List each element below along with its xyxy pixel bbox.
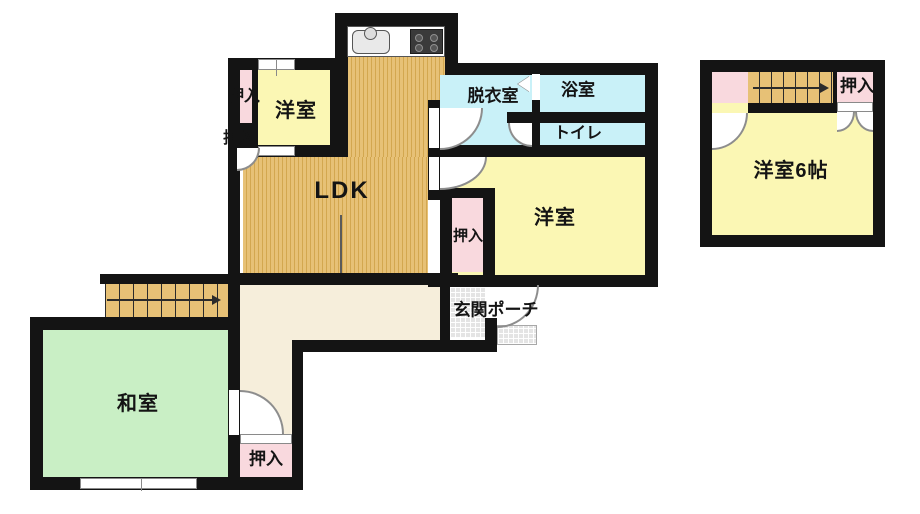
floor-plan: 押入 押入 洋室 LDK 脱衣室 浴室 トイレ 洋室 押入 和室 押入 玄関ポー…: [0, 0, 920, 514]
folding-door-icon: [518, 76, 530, 92]
wall: [833, 72, 837, 103]
stairs-2f-arrow: [753, 87, 823, 89]
label-closet-2f: 押入: [840, 78, 874, 95]
wall: [507, 112, 658, 123]
wall: [100, 274, 230, 284]
label-western-room-top: 洋室: [275, 101, 317, 121]
wall: [483, 198, 495, 275]
label-oshiire-top-1: 押入: [228, 89, 260, 105]
label-toilet: トイレ: [554, 126, 602, 142]
label-western-room-right: 洋室: [534, 208, 576, 228]
label-western-room-6jo: 洋室6帖: [753, 161, 828, 181]
wall: [228, 158, 240, 330]
porch-tile: [497, 325, 537, 345]
kitchen-faucet-icon: [364, 27, 377, 40]
wall: [440, 278, 450, 340]
wall: [645, 63, 658, 287]
closet-area-2f-left: [712, 72, 748, 103]
label-ldk: LDK: [314, 179, 369, 203]
wall: [428, 275, 658, 287]
wall: [330, 58, 348, 157]
wall: [445, 63, 658, 75]
label-dressing-room: 脱衣室: [468, 88, 519, 105]
sliding-door: [258, 146, 295, 156]
wall: [335, 13, 458, 26]
door-gap: [532, 74, 540, 100]
door-gap: [429, 157, 439, 190]
stove-burner-icon: [415, 44, 423, 52]
label-closet-bottom: 押入: [249, 451, 283, 468]
wall: [485, 318, 497, 352]
wall: [440, 198, 452, 275]
wall: [532, 123, 540, 147]
door-gap: [229, 390, 239, 435]
room-ldk-mid-arm: [348, 100, 428, 157]
room-ldk-main: [243, 157, 428, 275]
stove-burner-icon: [430, 34, 438, 42]
wall: [440, 188, 495, 198]
closet-sliding-door: [240, 434, 292, 444]
wall: [30, 317, 240, 330]
window-tick: [141, 478, 142, 491]
label-japanese-room: 和室: [117, 394, 159, 414]
label-oshiire-top-2: 押入: [223, 131, 255, 147]
wall: [293, 340, 497, 352]
label-closet-mid: 押入: [453, 229, 483, 244]
stove-burner-icon: [430, 44, 438, 52]
wall: [30, 317, 43, 490]
door-gap: [429, 108, 439, 148]
ldk-room-divider: [340, 215, 342, 273]
stairs-2f-arrowhead: [820, 83, 829, 93]
stairs-1f-arrowhead: [212, 295, 221, 305]
wall: [748, 103, 837, 113]
label-bathroom: 浴室: [561, 82, 595, 99]
wall: [292, 340, 303, 490]
stove-burner-icon: [415, 34, 423, 42]
wall: [428, 145, 658, 157]
stove-icon: [410, 29, 443, 54]
label-entrance-porch: 玄関ポーチ: [454, 302, 539, 319]
wall: [228, 273, 458, 285]
stairs-1f-arrow: [107, 299, 215, 301]
window-tick: [276, 59, 277, 76]
window: [80, 478, 197, 489]
closet-2f-sliding-door: [837, 102, 873, 112]
